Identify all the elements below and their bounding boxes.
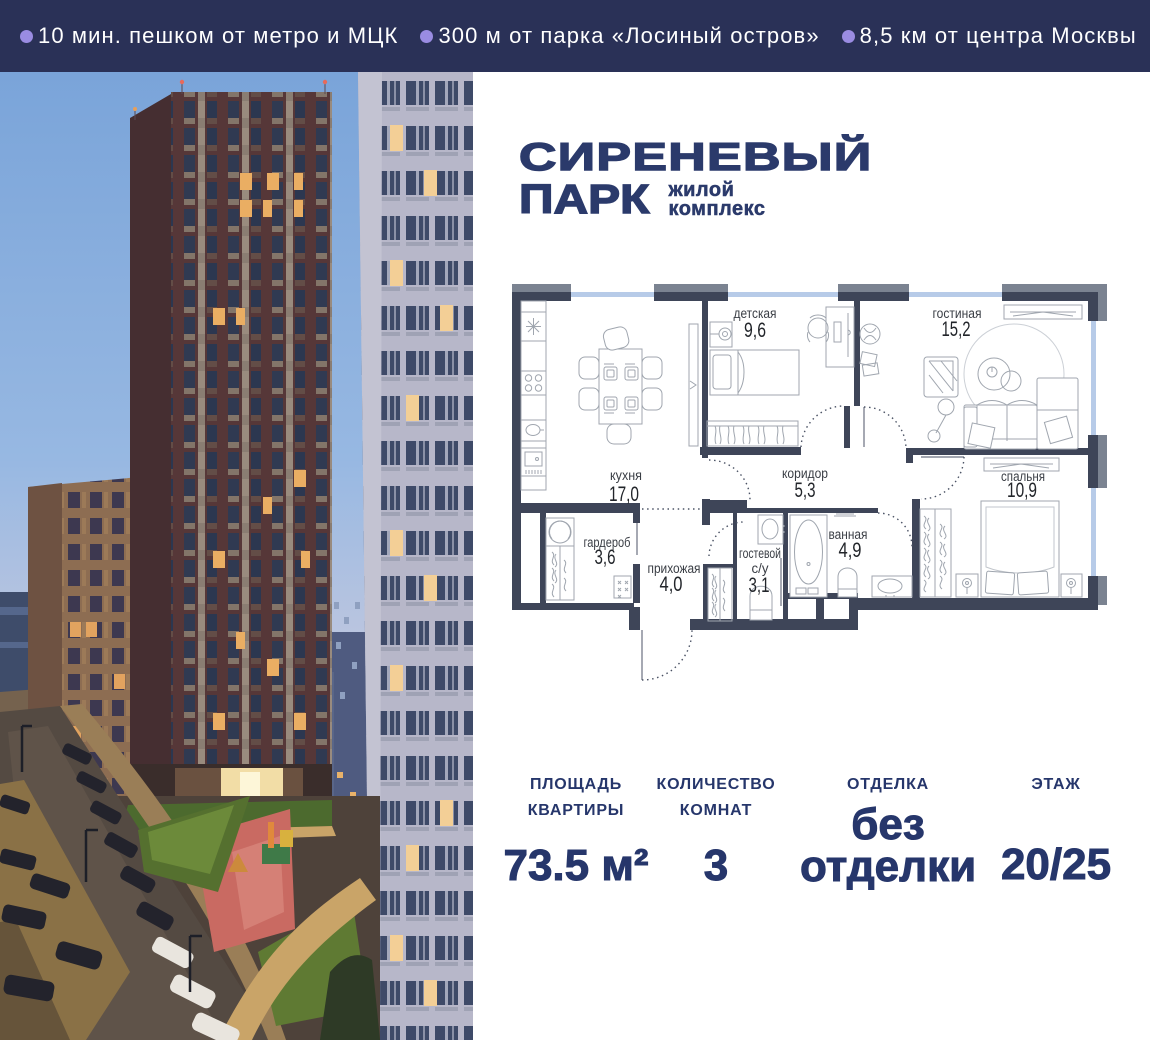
svg-text:9,6: 9,6 [744, 319, 766, 342]
svg-text:кухня: кухня [610, 468, 642, 483]
svg-text:3,1: 3,1 [749, 574, 770, 597]
svg-text:4,9: 4,9 [839, 539, 862, 562]
svg-text:4,0: 4,0 [660, 573, 683, 596]
svg-text:3,6: 3,6 [595, 546, 616, 569]
svg-text:17,0: 17,0 [609, 483, 639, 506]
svg-text:гостевой: гостевой [739, 546, 781, 561]
svg-text:15,2: 15,2 [942, 318, 971, 341]
svg-text:10,9: 10,9 [1007, 479, 1037, 502]
svg-text:5,3: 5,3 [795, 479, 816, 502]
